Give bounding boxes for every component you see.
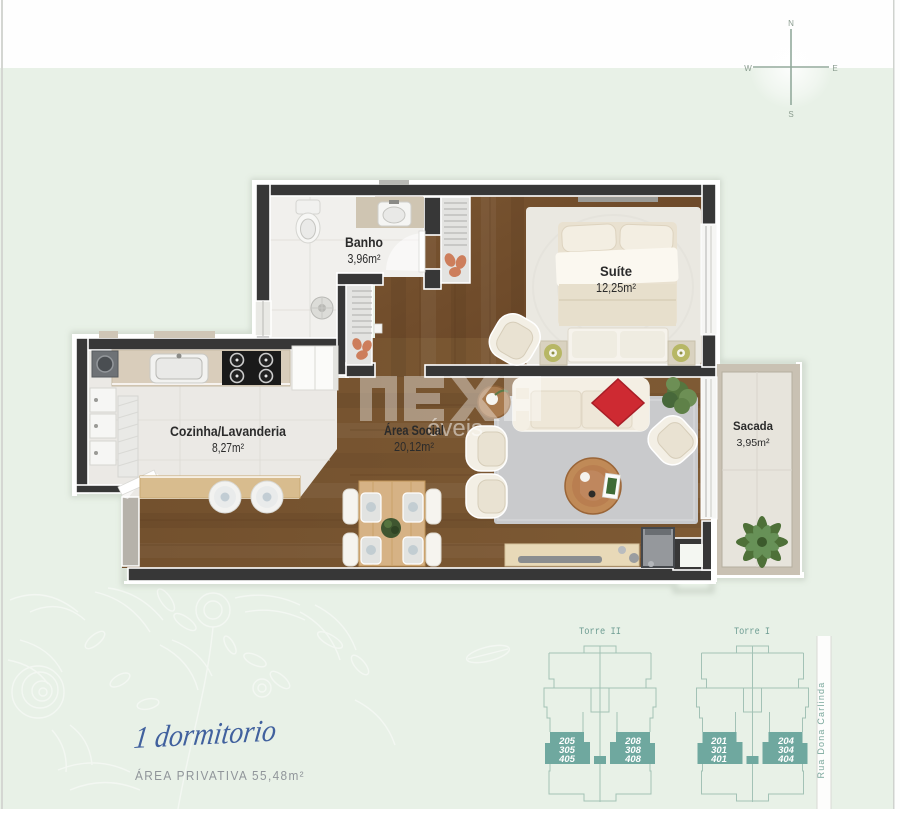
svg-text:Banho: Banho <box>345 235 383 250</box>
svg-text:12,25m²: 12,25m² <box>596 281 636 295</box>
svg-text:Torre I: Torre I <box>734 627 770 638</box>
svg-text:20,12m²: 20,12m² <box>394 440 434 454</box>
svg-text:404: 404 <box>777 754 795 765</box>
svg-text:Sacada: Sacada <box>733 421 774 433</box>
svg-text:Suíte: Suíte <box>600 264 632 279</box>
svg-text:Rua Dona Carlinda: Rua Dona Carlinda <box>816 682 826 779</box>
svg-text:Cozinha/Lavanderia: Cozinha/Lavanderia <box>170 423 286 439</box>
svg-text:E: E <box>832 64 837 73</box>
svg-text:S: S <box>788 110 793 119</box>
svg-text:401: 401 <box>710 754 727 765</box>
svg-text:3,95m²: 3,95m² <box>737 437 770 449</box>
svg-text:3,96m²: 3,96m² <box>348 252 381 266</box>
svg-text:405: 405 <box>558 754 576 765</box>
svg-text:408: 408 <box>624 754 642 765</box>
svg-text:W: W <box>744 64 752 73</box>
svg-text:Área Social: Área Social <box>384 423 444 438</box>
svg-text:ÁREA PRIVATIVA 55,48m²: ÁREA PRIVATIVA 55,48m² <box>135 768 305 783</box>
svg-text:8,27m²: 8,27m² <box>212 441 244 455</box>
svg-text:N: N <box>788 19 794 28</box>
svg-text:Torre II: Torre II <box>579 627 621 638</box>
